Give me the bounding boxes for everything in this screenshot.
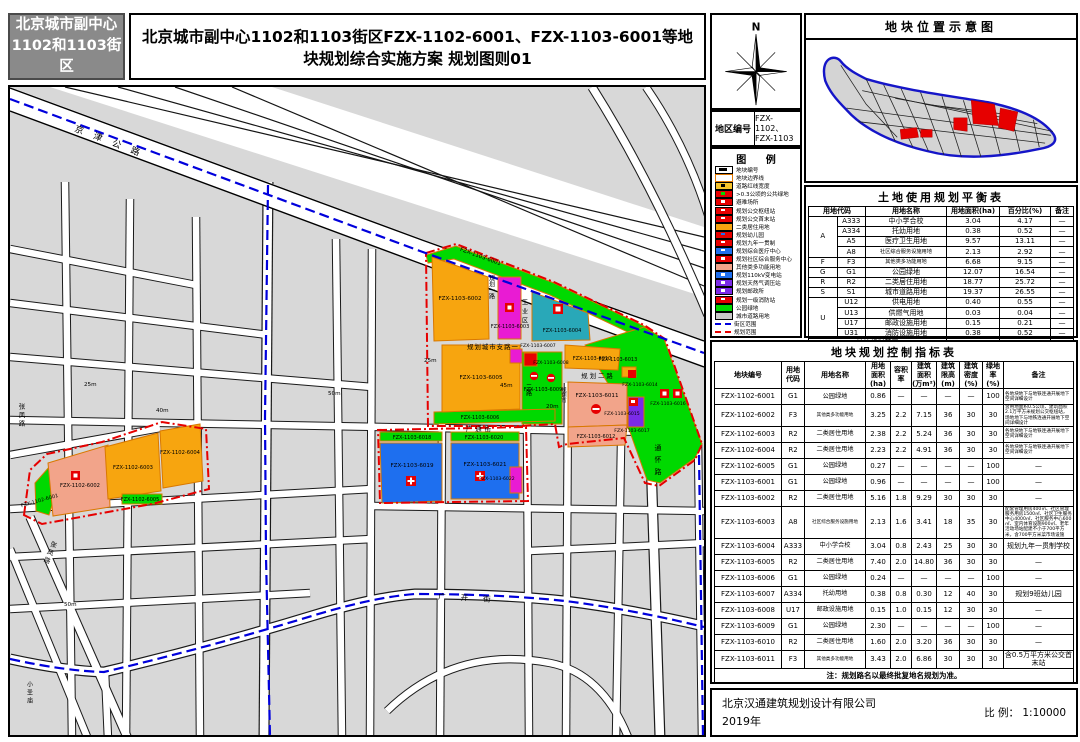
land-pct: 2.92 xyxy=(1000,247,1051,257)
far: 1.8 xyxy=(891,490,912,506)
far: 0.8 xyxy=(891,538,912,554)
area: 2.38 xyxy=(866,426,891,442)
land-name: 社区综合服务设施用地 xyxy=(805,506,866,538)
legend-label: 规划一级消防站 xyxy=(736,296,775,304)
parcel-id: FZX-1102-6005 xyxy=(715,458,782,474)
legend-item: 规划幼儿园 xyxy=(715,231,797,239)
legend-chip xyxy=(715,296,733,304)
land-code: F3 xyxy=(837,257,866,267)
land-name: 消防设施用地 xyxy=(866,328,947,338)
green-ratio: 100 xyxy=(983,389,1004,405)
land-note: — xyxy=(1051,247,1074,257)
density: — xyxy=(960,570,983,586)
shelter-icon xyxy=(673,389,682,398)
school-icon xyxy=(553,304,563,314)
remark: 含0.5万平方米公交首末站 xyxy=(1004,650,1074,669)
far: 2.2 xyxy=(891,442,912,458)
land-name: 二类居住用地 xyxy=(866,277,947,287)
road-label: 规划城市支路一 xyxy=(467,342,519,351)
col-header: 百分比(%) xyxy=(1000,207,1051,217)
far: 2.2 xyxy=(891,426,912,442)
land-name: 其他类多功能用地 xyxy=(866,257,947,267)
utility-icon xyxy=(629,398,638,406)
legend-chip xyxy=(715,263,733,271)
table-row: FZX-1103-6002R2二类居住用地5.161.89.29303030— xyxy=(715,490,1074,506)
land-note: — xyxy=(1051,237,1074,247)
area: 0.24 xyxy=(866,570,891,586)
land-note: — xyxy=(1051,318,1074,328)
land-name: 二类居住用地 xyxy=(805,426,866,442)
land-name: 医疗卫生用地 xyxy=(866,237,947,247)
gfa: 2.43 xyxy=(912,538,937,554)
legend-chip xyxy=(715,215,733,223)
land-area: 3.04 xyxy=(947,216,1000,226)
legend-label: 城市道路用地 xyxy=(736,312,770,320)
height-limit: 12 xyxy=(937,602,960,618)
region-code-box: 地区编号 FZX-1102、 FZX-1103 xyxy=(710,110,802,147)
far: 0.8 xyxy=(891,586,912,602)
land-code: U17 xyxy=(837,318,866,328)
parcel-label: FZX-1103-6013 xyxy=(599,357,638,363)
land-code: S1 xyxy=(837,288,866,298)
land-name: 托幼用地 xyxy=(866,226,947,236)
table-row: FZX-1102-6005G1公园绿地0.27————100— xyxy=(715,458,1074,474)
land-name: 供电用地 xyxy=(866,298,947,308)
table-row: A334托幼用地0.380.52— xyxy=(809,226,1074,236)
density: 30 xyxy=(960,634,983,650)
gfa: 9.29 xyxy=(912,490,937,506)
col-header: 用地 代码 xyxy=(782,362,805,389)
land-area: 19.37 xyxy=(947,288,1000,298)
legend-label: 规划公交枢纽站 xyxy=(736,207,775,215)
height-limit: 36 xyxy=(937,426,960,442)
height-limit: 30 xyxy=(937,490,960,506)
table-row: SS1城市道路用地19.3726.55— xyxy=(809,288,1074,298)
land-pct: 0.52 xyxy=(1000,328,1051,338)
table-row: FZX-1103-6011F3其他类多功能用地3.432.06.86303030… xyxy=(715,650,1074,669)
land-note: — xyxy=(1051,216,1074,226)
green-ratio: 100 xyxy=(983,570,1004,586)
far: 2.0 xyxy=(891,554,912,570)
kindergarten-icon xyxy=(505,303,514,312)
parcel-label: FZX-1103-6019 xyxy=(390,463,434,469)
region-code-value: FZX-1102、 FZX-1103 xyxy=(755,112,800,145)
table-row: FZX-1102-6003R2二类居住用地2.382.25.24363030各地… xyxy=(715,426,1074,442)
width-label: 40m xyxy=(156,408,169,414)
remark: 配套管理用房400㎡、社区管理服务用房1500㎡、社区卫生服务中心4000㎡、社… xyxy=(1004,506,1074,538)
col-header: 用地名称 xyxy=(866,207,947,217)
height-limit: 36 xyxy=(937,405,960,427)
legend-item: 地块编号 xyxy=(715,166,797,174)
gfa: — xyxy=(912,389,937,405)
far: — xyxy=(891,389,912,405)
table-row: FZX-1103-6004A333中小学合校3.040.82.43253030规… xyxy=(715,538,1074,554)
height-limit: 18 xyxy=(937,506,960,538)
land-group: U xyxy=(809,298,838,339)
land-pct: 13.11 xyxy=(1000,237,1051,247)
table-row: FZX-1102-6004R2二类居住用地2.232.24.91363030各地… xyxy=(715,442,1074,458)
legend-chip xyxy=(715,331,731,333)
parcel-id: FZX-1103-6011 xyxy=(715,650,782,669)
legend-item: 规划邮政所 xyxy=(715,287,797,295)
density: 40 xyxy=(960,586,983,602)
legend-label: 避难场所 xyxy=(736,198,758,206)
table-row: FZX-1103-6009G1公园绿地2.30————100— xyxy=(715,618,1074,634)
balance-table-box: 土地使用规划平衡表 用地代码用地名称用地面积(ha)百分比(%)备注AA333中… xyxy=(804,185,1078,338)
parcel-id: FZX-1103-6006 xyxy=(715,570,782,586)
area: 2.30 xyxy=(866,618,891,634)
compass: N xyxy=(710,13,802,110)
gfa: 3.41 xyxy=(912,506,937,538)
bus-terminal-icon xyxy=(530,372,538,380)
density: — xyxy=(960,458,983,474)
land-code: U13 xyxy=(837,308,866,318)
area: 2.13 xyxy=(866,506,891,538)
road-label: 规划二路 xyxy=(581,371,615,380)
far: 1.6 xyxy=(891,506,912,538)
land-name: 供燃气用地 xyxy=(866,308,947,318)
area: 1.60 xyxy=(866,634,891,650)
remark: 含用地面积0.5公顷、建筑面积2.1万平方米规划公交枢纽站，场地地下与地铁连通开… xyxy=(1004,405,1074,427)
width-label: 50m xyxy=(328,391,341,397)
green-ratio: 30 xyxy=(983,650,1004,669)
land-pct: 0.52 xyxy=(1000,226,1051,236)
table-row: FZX-1102-6002F3其他类多功能用地3.252.27.15363030… xyxy=(715,405,1074,427)
green-ratio: 100 xyxy=(983,618,1004,634)
density: 30 xyxy=(960,538,983,554)
location-inset-map xyxy=(806,40,1076,182)
land-name: 二类居住用地 xyxy=(805,490,866,506)
width-label: 25m xyxy=(84,382,97,388)
far: — xyxy=(891,570,912,586)
land-pct: 4.17 xyxy=(1000,216,1051,226)
legend-item: 规划范围 xyxy=(715,328,797,336)
gfa: 6.86 xyxy=(912,650,937,669)
land-group: R xyxy=(809,277,838,287)
land-code: G1 xyxy=(782,458,805,474)
parcel-id: FZX-1103-6003 xyxy=(715,506,782,538)
compass-rose: N xyxy=(712,17,800,106)
gfa: — xyxy=(912,570,937,586)
parcel-id: FZX-1103-6009 xyxy=(715,618,782,634)
legend-label: 街区范围 xyxy=(734,320,756,328)
land-code: G1 xyxy=(837,267,866,277)
parcel-label: FZX-1103-6021 xyxy=(463,462,507,468)
land-area: 0.40 xyxy=(947,298,1000,308)
road-label: 三路 xyxy=(525,384,532,397)
legend-item: 规划九年一贯制 xyxy=(715,239,797,247)
parcel-label: FZX-1103-6017 xyxy=(614,428,649,434)
parcel-label: FZX-1103-6015 xyxy=(604,411,639,417)
legend-label: 规划九年一贯制 xyxy=(736,239,775,247)
legend-label: 规划110kV变电站 xyxy=(736,271,782,279)
land-group: A xyxy=(809,216,838,257)
scale-label: 比 例： xyxy=(984,707,1019,719)
gfa: 7.15 xyxy=(912,405,937,427)
land-note: — xyxy=(1051,298,1074,308)
page-title: 北京城市副中心1102和1103街区FZX-1102-6001、FZX-1103… xyxy=(131,25,704,69)
table-row: FZX-1103-6007A334托幼用地0.380.80.30124030规划… xyxy=(715,586,1074,602)
legend-chip xyxy=(715,279,733,287)
land-name: 公园绿地 xyxy=(805,570,866,586)
remark: 规划9班幼儿园 xyxy=(1004,586,1074,602)
width-label: 25m xyxy=(424,358,437,364)
density: 30 xyxy=(960,650,983,669)
legend-item: 避难场所 xyxy=(715,198,797,206)
land-name: 城市道路用地 xyxy=(866,288,947,298)
legend-label: 公园绿地 xyxy=(736,304,758,312)
legend-item: >0.3公顷的公共绿地 xyxy=(715,190,797,198)
map-canvas: FZX-1103-6001 FZX-1103-6002 FZX-1103-600… xyxy=(10,87,704,735)
table-row: FZX-1103-6003A8社区综合服务设施用地2.131.63.411835… xyxy=(715,506,1074,538)
parcel-label: FZX-1103-6005 xyxy=(459,375,503,381)
table-row: FZX-1103-6010R2二类居住用地1.602.03.20363030— xyxy=(715,634,1074,650)
bus-terminal-icon xyxy=(547,374,555,382)
legend-title: 图 例 xyxy=(715,151,797,166)
remark: — xyxy=(1004,490,1074,506)
height-limit: 36 xyxy=(937,554,960,570)
table-row: FF3其他类多功能用地6.689.15— xyxy=(809,257,1074,267)
land-area: 18.77 xyxy=(947,277,1000,287)
badge-line1: 北京城市副中心 xyxy=(16,15,118,36)
land-code: G1 xyxy=(782,618,805,634)
land-name: 公园绿地 xyxy=(805,618,866,634)
scale-value: 1:10000 xyxy=(1022,707,1066,719)
legend-item: 城市道路用地 xyxy=(715,312,797,320)
table-row: U31消防设施用地0.380.52— xyxy=(809,328,1074,338)
balance-table-title: 土地使用规划平衡表 xyxy=(808,188,1074,206)
gfa: — xyxy=(912,474,937,490)
land-area: 0.03 xyxy=(947,308,1000,318)
remark: — xyxy=(1004,602,1074,618)
legend-label: 规划邮政所 xyxy=(736,287,764,295)
green-ratio: 30 xyxy=(983,634,1004,650)
col-header: 绿地 率 (%) xyxy=(983,362,1004,389)
legend-chip xyxy=(715,190,733,198)
parcel-label: FZX-1102-6003 xyxy=(113,465,153,471)
planning-map: FZX-1103-6001 FZX-1103-6002 FZX-1103-600… xyxy=(8,85,706,737)
land-name: 邮政设施用地 xyxy=(866,318,947,328)
far: 2.2 xyxy=(891,405,912,427)
table-row: AA333中小学合校3.044.17— xyxy=(809,216,1074,226)
parcel-id: FZX-1103-6008 xyxy=(715,602,782,618)
table-row: A8社区综合服务设施用地2.132.92— xyxy=(809,247,1074,257)
header-badge: 北京城市副中心 1102和1103街区 xyxy=(8,13,125,80)
density: — xyxy=(960,474,983,490)
legend-chip xyxy=(715,207,733,215)
parcel-id: FZX-1103-6005 xyxy=(715,554,782,570)
legend-items: 地块编号地块边界线道路红线宽度>0.3公顷的公共绿地避难场所规划公交枢纽站规划公… xyxy=(715,166,797,336)
legend-chip xyxy=(715,223,733,231)
legend-label: 道路红线宽度 xyxy=(736,182,770,190)
land-code: G1 xyxy=(782,570,805,586)
land-pct: 0.21 xyxy=(1000,318,1051,328)
green-ratio: 30 xyxy=(983,602,1004,618)
table-row: GG1公园绿地12.0716.54— xyxy=(809,267,1074,277)
width-label: 20m xyxy=(546,404,559,410)
remark: — xyxy=(1004,570,1074,586)
location-inset: 地块位置示意图 xyxy=(804,13,1078,183)
legend-item: 规划110kV变电站 xyxy=(715,271,797,279)
parcel-label: FZX-1102-6005 xyxy=(121,497,160,503)
utility-icon xyxy=(628,370,636,378)
land-code: R2 xyxy=(782,426,805,442)
area: 3.04 xyxy=(866,538,891,554)
land-code: A333 xyxy=(837,216,866,226)
far: 2.0 xyxy=(891,650,912,669)
land-note: — xyxy=(1051,308,1074,318)
density: — xyxy=(960,389,983,405)
road-label: 张凤路 xyxy=(17,402,25,429)
legend-item: 规划公交枢纽站 xyxy=(715,206,797,214)
area: 0.15 xyxy=(866,602,891,618)
green-ratio: 30 xyxy=(983,405,1004,427)
legend-item: 公园绿地 xyxy=(715,304,797,312)
road-label: 小圣庙 xyxy=(26,680,33,705)
legend-chip xyxy=(715,323,731,325)
remark: 各地块地下与地铁连通开展地下空间详细设计 xyxy=(1004,389,1074,405)
land-name: 托幼用地 xyxy=(805,586,866,602)
green-ratio: 100 xyxy=(983,458,1004,474)
density: — xyxy=(960,618,983,634)
balance-table: 用地代码用地名称用地面积(ha)百分比(%)备注AA333中小学合校3.044.… xyxy=(808,206,1074,349)
parcel-label: FZX-1103-6022 xyxy=(479,476,514,482)
road-label: 规划一路 xyxy=(488,274,495,300)
area: 7.40 xyxy=(866,554,891,570)
road-label: 通怀路 xyxy=(654,443,662,480)
height-limit: 36 xyxy=(937,442,960,458)
table-row: FZX-1103-6008U17邮政设施用地0.151.00.15123030— xyxy=(715,602,1074,618)
gfa: 14.80 xyxy=(912,554,937,570)
parcel-id: FZX-1103-6007 xyxy=(715,586,782,602)
gfa: — xyxy=(912,458,937,474)
land-name: 公园绿地 xyxy=(805,389,866,405)
land-code: G1 xyxy=(782,389,805,405)
gfa: 0.15 xyxy=(912,602,937,618)
legend-chip xyxy=(715,231,733,239)
land-group: F xyxy=(809,257,838,267)
legend-item: 规划天然气调压站 xyxy=(715,279,797,287)
table-row: RR2二类居住用地18.7725.72— xyxy=(809,277,1074,287)
parcel-label: FZX-1103-6011 xyxy=(575,393,619,399)
land-name: 其他类多功能用地 xyxy=(805,405,866,427)
legend-item: 规划社区综合服务中心 xyxy=(715,255,797,263)
road-label: 广通街 xyxy=(466,424,494,433)
land-name: 公园绿地 xyxy=(866,267,947,277)
land-code: A5 xyxy=(837,237,866,247)
land-code: F3 xyxy=(782,405,805,427)
land-pct: 26.55 xyxy=(1000,288,1051,298)
parcel-id: FZX-1103-6010 xyxy=(715,634,782,650)
parcel-id: FZX-1102-6004 xyxy=(715,442,782,458)
col-header: 用地代码 xyxy=(809,207,866,217)
remark: — xyxy=(1004,458,1074,474)
legend-item: 规划综合医疗中心 xyxy=(715,247,797,255)
green-ratio: 100 xyxy=(983,474,1004,490)
legend-item: 道路红线宽度 xyxy=(715,182,797,190)
area: 5.16 xyxy=(866,490,891,506)
land-name: 中小学合校 xyxy=(805,538,866,554)
gfa: 5.24 xyxy=(912,426,937,442)
far: — xyxy=(891,474,912,490)
area: 0.27 xyxy=(866,458,891,474)
land-name: 二类居住用地 xyxy=(805,634,866,650)
land-group: G xyxy=(809,267,838,277)
table-footnote: 注：规划路名以最终批复地名规划为准。 xyxy=(715,669,1074,683)
green-ratio: 30 xyxy=(983,426,1004,442)
gfa: 0.30 xyxy=(912,586,937,602)
region-code-label: 地区编号 xyxy=(712,112,755,145)
height-limit: — xyxy=(937,570,960,586)
legend-chip xyxy=(715,255,733,263)
height-limit: 25 xyxy=(937,538,960,554)
far: 2.0 xyxy=(891,634,912,650)
area: 3.43 xyxy=(866,650,891,669)
land-area: 9.57 xyxy=(947,237,1000,247)
green-ratio: 30 xyxy=(983,554,1004,570)
parcel-label: FZX-1103-6018 xyxy=(393,435,432,441)
legend-chip xyxy=(715,198,733,206)
remark: — xyxy=(1004,634,1074,650)
land-code: U12 xyxy=(837,298,866,308)
green-ratio: 30 xyxy=(983,506,1004,538)
control-table-title: 地块规划控制指标表 xyxy=(714,343,1074,361)
location-inset-title: 地块位置示意图 xyxy=(806,15,1076,40)
parcel-label: FZX-1103-6016 xyxy=(650,401,685,407)
control-table: 地块编号用地 代码用地名称用地 面积 (ha)容积 率建筑 面积 (万m²)建筑… xyxy=(714,361,1074,683)
far: — xyxy=(891,458,912,474)
land-note: — xyxy=(1051,277,1074,287)
land-note: — xyxy=(1051,328,1074,338)
col-header: 用地面积(ha) xyxy=(947,207,1000,217)
table-row: FZX-1102-6001G1公园绿地0.86————100各地块地下与地铁连通… xyxy=(715,389,1074,405)
land-name: 其他类多功能用地 xyxy=(805,650,866,669)
height-limit: — xyxy=(937,618,960,634)
col-header: 建筑 密度 (%) xyxy=(960,362,983,389)
height-limit: — xyxy=(937,458,960,474)
land-pct: 9.15 xyxy=(1000,257,1051,267)
remark: 各地块地下与地铁连通开展地下空间详细设计 xyxy=(1004,426,1074,442)
table-row: FZX-1103-6005R2二类居住用地7.402.014.80363030— xyxy=(715,554,1074,570)
parcel-label: FZX-1103-6008 xyxy=(533,360,568,366)
land-note: — xyxy=(1051,288,1074,298)
legend-label: 规划公交首末站 xyxy=(736,215,775,223)
land-pct: 16.54 xyxy=(1000,267,1051,277)
area: 3.25 xyxy=(866,405,891,427)
density: 30 xyxy=(960,442,983,458)
height-limit: 30 xyxy=(937,650,960,669)
land-note: — xyxy=(1051,226,1074,236)
land-pct: 0.04 xyxy=(1000,308,1051,318)
bus-terminal-icon xyxy=(591,404,601,414)
land-code: U31 xyxy=(837,328,866,338)
school-icon xyxy=(71,471,80,480)
road-label: 工业区 xyxy=(521,299,528,326)
parcel-label: FZX-1103-6014 xyxy=(622,382,657,388)
remark: — xyxy=(1004,618,1074,634)
land-code: R2 xyxy=(837,277,866,287)
legend-chip xyxy=(715,247,733,255)
legend-item: 其他类多功能用地 xyxy=(715,263,797,271)
legend-item: 二类居住用地 xyxy=(715,223,797,231)
legend-item: 规划公交首末站 xyxy=(715,215,797,223)
legend-chip xyxy=(715,304,733,312)
north-label: N xyxy=(752,21,761,33)
land-name: 中小学合校 xyxy=(866,216,947,226)
land-code: F3 xyxy=(782,650,805,669)
col-header: 地块编号 xyxy=(715,362,782,389)
legend-label: 规划幼儿园 xyxy=(736,231,764,239)
